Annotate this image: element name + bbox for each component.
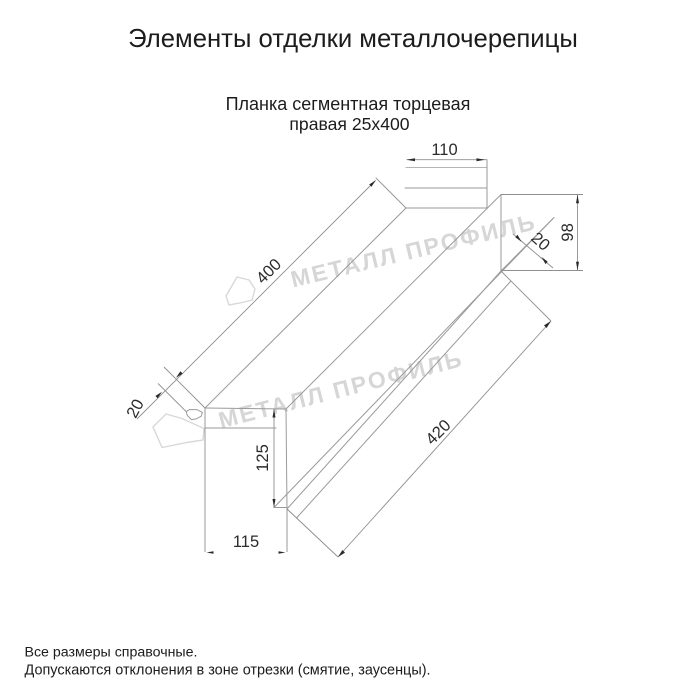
svg-text:правая 25х400: правая 25х400 — [289, 114, 409, 134]
svg-text:Допускаются отклонения в зоне: Допускаются отклонения в зоне отрезки (с… — [25, 663, 431, 679]
svg-text:Все размеры справочные.: Все размеры справочные. — [25, 645, 198, 661]
svg-text:98: 98 — [559, 223, 577, 241]
svg-text:Элементы отделки металлочерепи: Элементы отделки металлочерепицы — [128, 25, 578, 53]
svg-text:125: 125 — [254, 444, 272, 472]
svg-text:115: 115 — [233, 533, 259, 551]
svg-text:110: 110 — [431, 141, 457, 159]
svg-text:Планка сегментная торцевая: Планка сегментная торцевая — [226, 94, 471, 114]
